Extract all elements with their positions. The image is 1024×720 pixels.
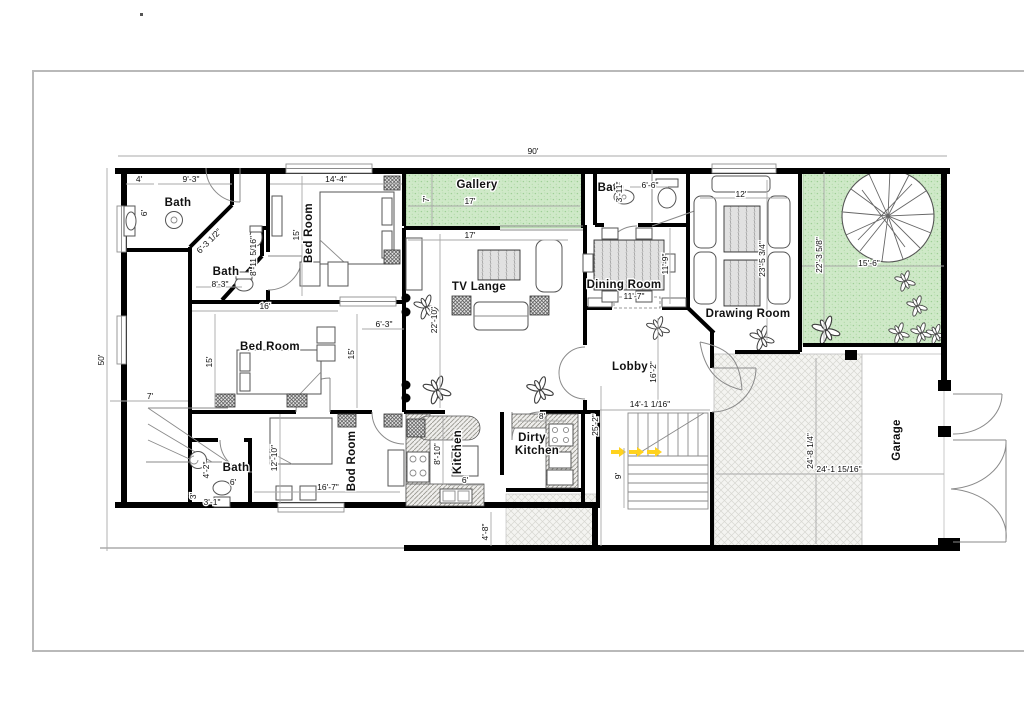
dim-stairs-w: 9': [613, 472, 623, 479]
closet-triangles: [146, 408, 228, 462]
toilet: [656, 179, 678, 208]
dim-bath4-d: 6': [230, 477, 237, 487]
dim-lobby-h: 16'-2": [648, 361, 658, 383]
room-label-dirty-line2: Kitchen: [515, 445, 559, 457]
staircase: [611, 413, 708, 509]
chair: [317, 327, 335, 343]
room-label-bed-room-bottom: Bod Room: [346, 431, 358, 492]
dim-kitchen-w: 6': [462, 475, 469, 485]
dim-bed2-h1: 15': [204, 356, 214, 367]
dim-patio-w: 24'-1 15/16": [816, 464, 861, 474]
chair: [636, 228, 652, 239]
sink: [124, 206, 136, 236]
furniture-kitchen: [406, 414, 484, 506]
window: [712, 164, 776, 173]
garage-floor: [862, 354, 944, 549]
chair: [328, 262, 348, 286]
window: [278, 503, 344, 512]
dim-gallery-w: 17': [464, 196, 475, 206]
sink: [440, 489, 472, 503]
dim-lobby-w: 14'-1 1/16": [630, 399, 671, 409]
furniture-bed-mid: [215, 327, 335, 407]
door-tv-lobby: [559, 347, 585, 399]
room-label-bath-bottom: Bath: [223, 462, 250, 474]
sofa: [694, 252, 716, 304]
sofa: [768, 252, 790, 304]
dim-bath1-a: 4': [136, 174, 143, 184]
stove: [549, 424, 573, 446]
dim-patio-h: 24'-8 1/4": [805, 433, 815, 469]
dim-drawing-w: 12': [735, 189, 746, 199]
corner-dot-mark: [140, 13, 143, 16]
dim-tv-h: 22'-10": [429, 307, 439, 333]
room-label-lobby: Lobby: [612, 361, 648, 373]
chair: [602, 228, 618, 239]
dim-hall-h: 25'-2": [590, 414, 600, 436]
dim-bed2-h2: 15': [346, 348, 356, 359]
window: [117, 316, 126, 364]
dim-bed1-w: 14'-4": [325, 174, 347, 184]
window: [340, 297, 396, 306]
room-label-kitchen: Kitchen: [452, 430, 464, 474]
dim-drawing-h: 23'-5 3/4": [757, 241, 767, 277]
dim-bath1-c: 6': [139, 209, 149, 216]
room-label-bed-room-top: Bed Room: [303, 203, 315, 263]
chair: [602, 291, 618, 302]
room-label-gallery: Gallery: [456, 179, 497, 191]
room-label-dining-room: Dining Room: [587, 279, 662, 291]
room-label-bath-top-left: Bath: [165, 197, 192, 209]
dim-overall-width: 90': [527, 146, 538, 156]
gate-single: [953, 394, 1002, 434]
room-label-drawing-room: Drawing Room: [706, 308, 791, 320]
toilet: [166, 212, 183, 229]
door-bedroom-top: [268, 256, 302, 290]
floor-plan-svg: Bath Bath Bed Room Gallery TV Lange Bath…: [0, 0, 1024, 720]
dim-bath1-b: 9'-3": [183, 174, 200, 184]
dim-bath3-h: 3'-11": [614, 181, 624, 202]
dim-bath1-v: 8'-11 5/16": [248, 236, 258, 276]
dim-back-gap: 4'-8": [480, 524, 490, 541]
dim-gallery-h: 7': [421, 195, 431, 202]
dim-bed1-h: 15': [291, 229, 301, 240]
room-label-garage: Garage: [891, 419, 903, 460]
chair: [583, 254, 593, 272]
dim-bed2-w: 16': [259, 301, 270, 311]
floor-plan-page: Bath Bath Bed Room Gallery TV Lange Bath…: [0, 0, 1024, 720]
garden-tree: [842, 170, 934, 262]
dim-dining-w: 11'-7": [623, 291, 644, 301]
dim-bed3-w: 16'-7": [317, 482, 339, 492]
dim-bath4-b: 3': [188, 492, 198, 499]
tv-cabinet: [478, 250, 520, 280]
dim-tv-w: 17': [464, 230, 475, 240]
sofa: [768, 196, 790, 248]
dim-dining-h: 11'-9": [660, 253, 670, 274]
window: [286, 164, 372, 173]
dim-overall-height: 50': [96, 354, 106, 365]
dim-garden-w: 15'-6": [858, 258, 880, 268]
dim-bed2-r: 6'-3": [376, 319, 393, 329]
stove: [407, 452, 429, 482]
dim-kitchen-h: 8'-10": [432, 443, 442, 465]
room-label-bed-room-mid: Bed Room: [240, 341, 300, 353]
chair: [317, 345, 335, 361]
dim-bath4-c: 3'-1": [204, 497, 221, 507]
room-label-bath-2: Bath: [213, 266, 240, 278]
dim-bath2-w: 8'-3": [212, 279, 229, 289]
chair: [276, 486, 292, 500]
room-label-tv-lounge: TV Lange: [452, 281, 506, 293]
dim-passage: 7': [147, 391, 154, 401]
dim-garden-h: 22'-3 5/8": [814, 237, 824, 273]
gate-double: [951, 440, 1006, 542]
patio-post: [845, 350, 857, 360]
dim-dirty-w: 8': [539, 411, 546, 421]
dim-bath4-a: 4'-2": [201, 462, 211, 479]
chair: [300, 486, 316, 500]
dim-bed3-h: 12'-10": [269, 445, 279, 471]
sofa: [536, 240, 562, 292]
dim-bath3-w: 6'-6": [642, 180, 659, 190]
sofa: [694, 196, 716, 248]
room-label-dirty-line1: Dirty: [518, 432, 546, 444]
chair: [300, 262, 320, 286]
